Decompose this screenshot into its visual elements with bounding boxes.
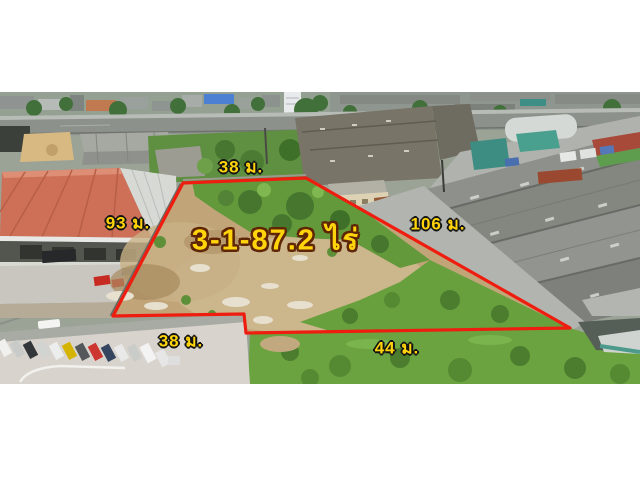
teal-shed — [470, 138, 510, 170]
black-truck — [42, 249, 77, 263]
area-label: 3-1-87.2 ไร่ — [192, 227, 360, 256]
listing-photo: 38 ม. 93 ม. 106 ม. 38 ม. 44 ม. 3-1-87.2 … — [0, 0, 640, 480]
small-truck — [168, 356, 180, 365]
dimension-label-bottom: 44 ม. — [375, 340, 420, 357]
front-grass — [248, 328, 640, 387]
top-margin — [0, 0, 640, 92]
dimension-label-right: 106 ม. — [410, 216, 465, 233]
dimension-label-top: 38 ม. — [219, 159, 264, 176]
bottom-margin — [0, 384, 640, 480]
dimension-label-left: 93 ม. — [106, 215, 151, 232]
dimension-label-front: 38 ม. — [159, 333, 204, 350]
